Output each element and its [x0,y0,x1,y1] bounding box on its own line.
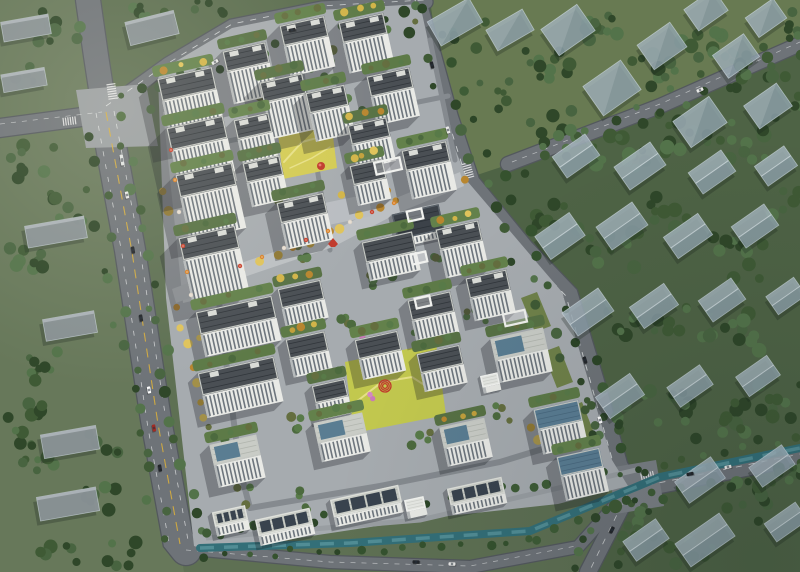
entrance-gate [407,208,424,221]
screenshot-root [0,0,800,572]
entrance-gate [411,251,428,264]
aerial-masterplan-rendering [0,0,800,572]
umbrella-top [393,202,394,203]
